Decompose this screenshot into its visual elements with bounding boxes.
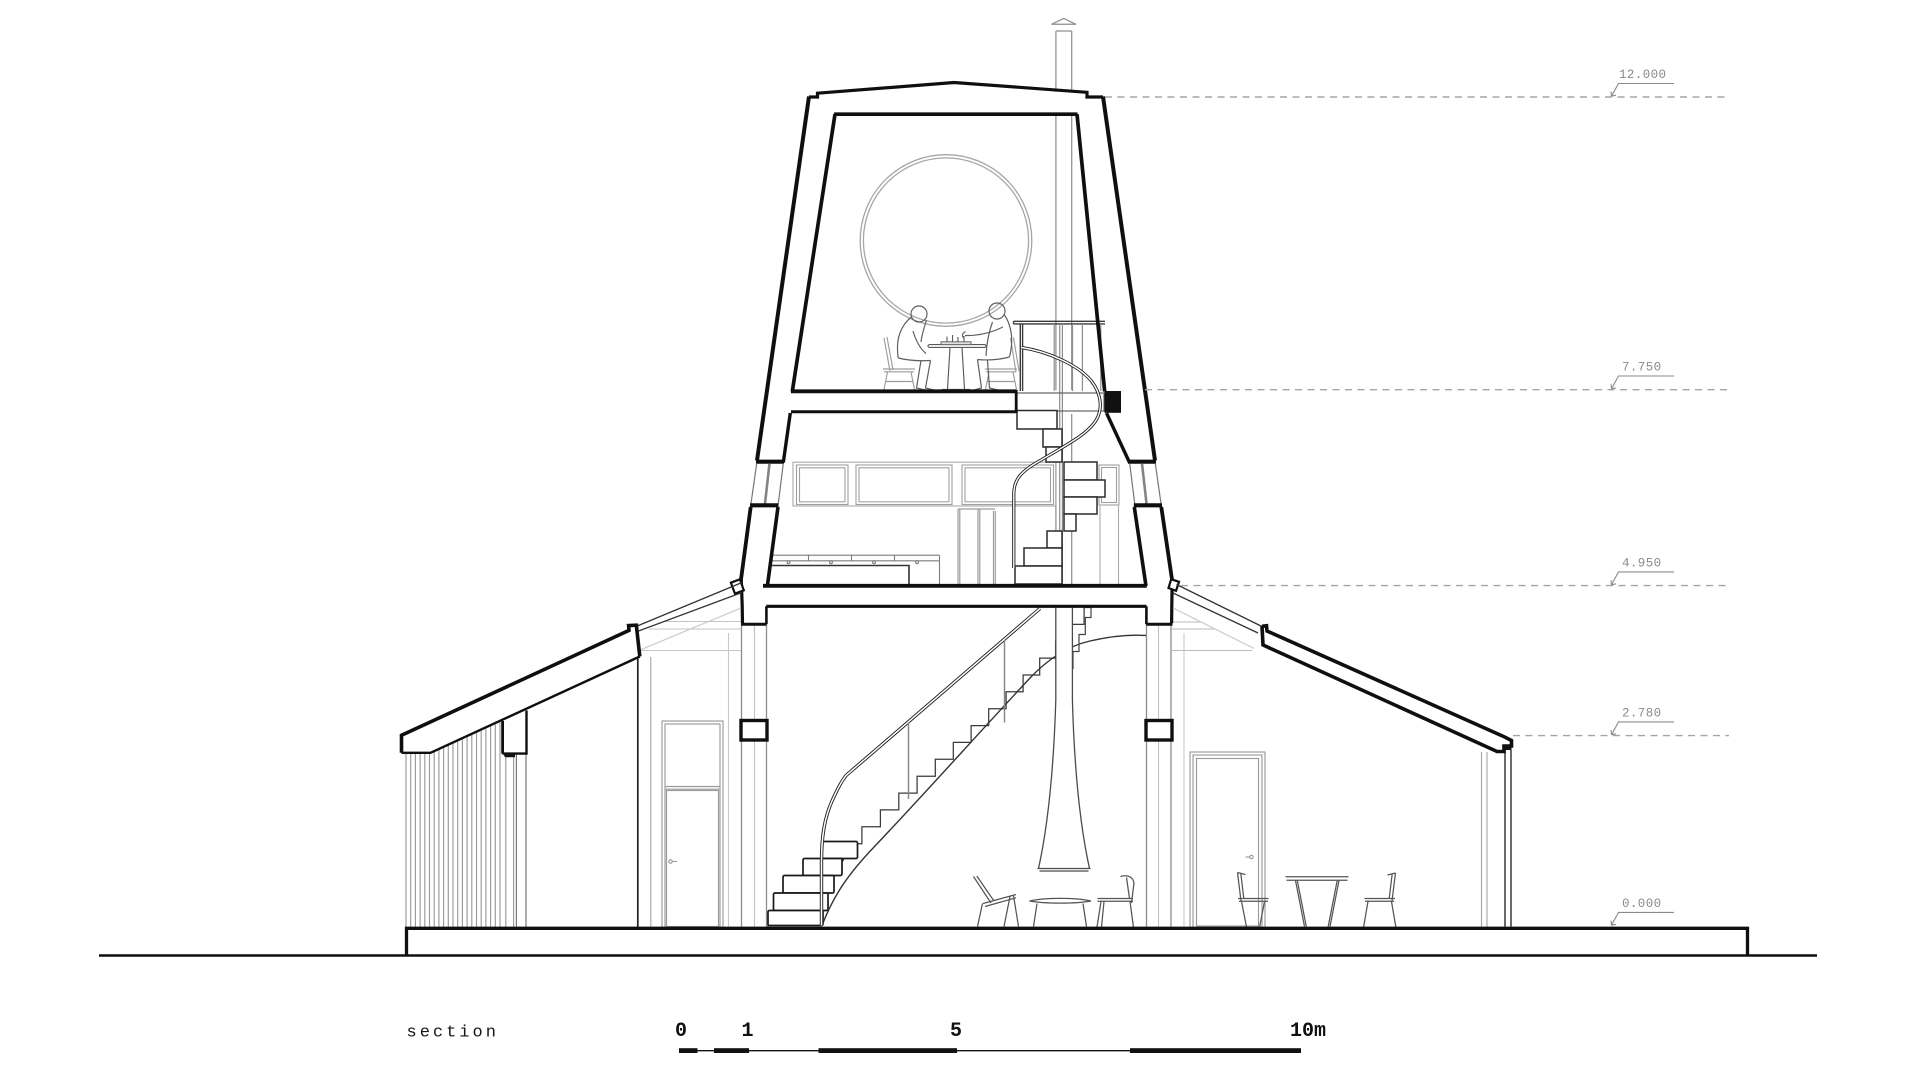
svg-text:5: 5 [950, 1020, 962, 1043]
svg-text:12.000: 12.000 [1619, 68, 1666, 82]
svg-text:0: 0 [675, 1020, 687, 1043]
svg-text:1: 1 [741, 1020, 753, 1043]
svg-text:0.000: 0.000 [1622, 897, 1662, 911]
svg-text:4.950: 4.950 [1622, 556, 1662, 570]
svg-text:7.750: 7.750 [1622, 361, 1662, 375]
svg-text:section: section [407, 1024, 499, 1043]
svg-text:10m: 10m [1290, 1020, 1326, 1043]
svg-text:2.780: 2.780 [1622, 706, 1662, 720]
